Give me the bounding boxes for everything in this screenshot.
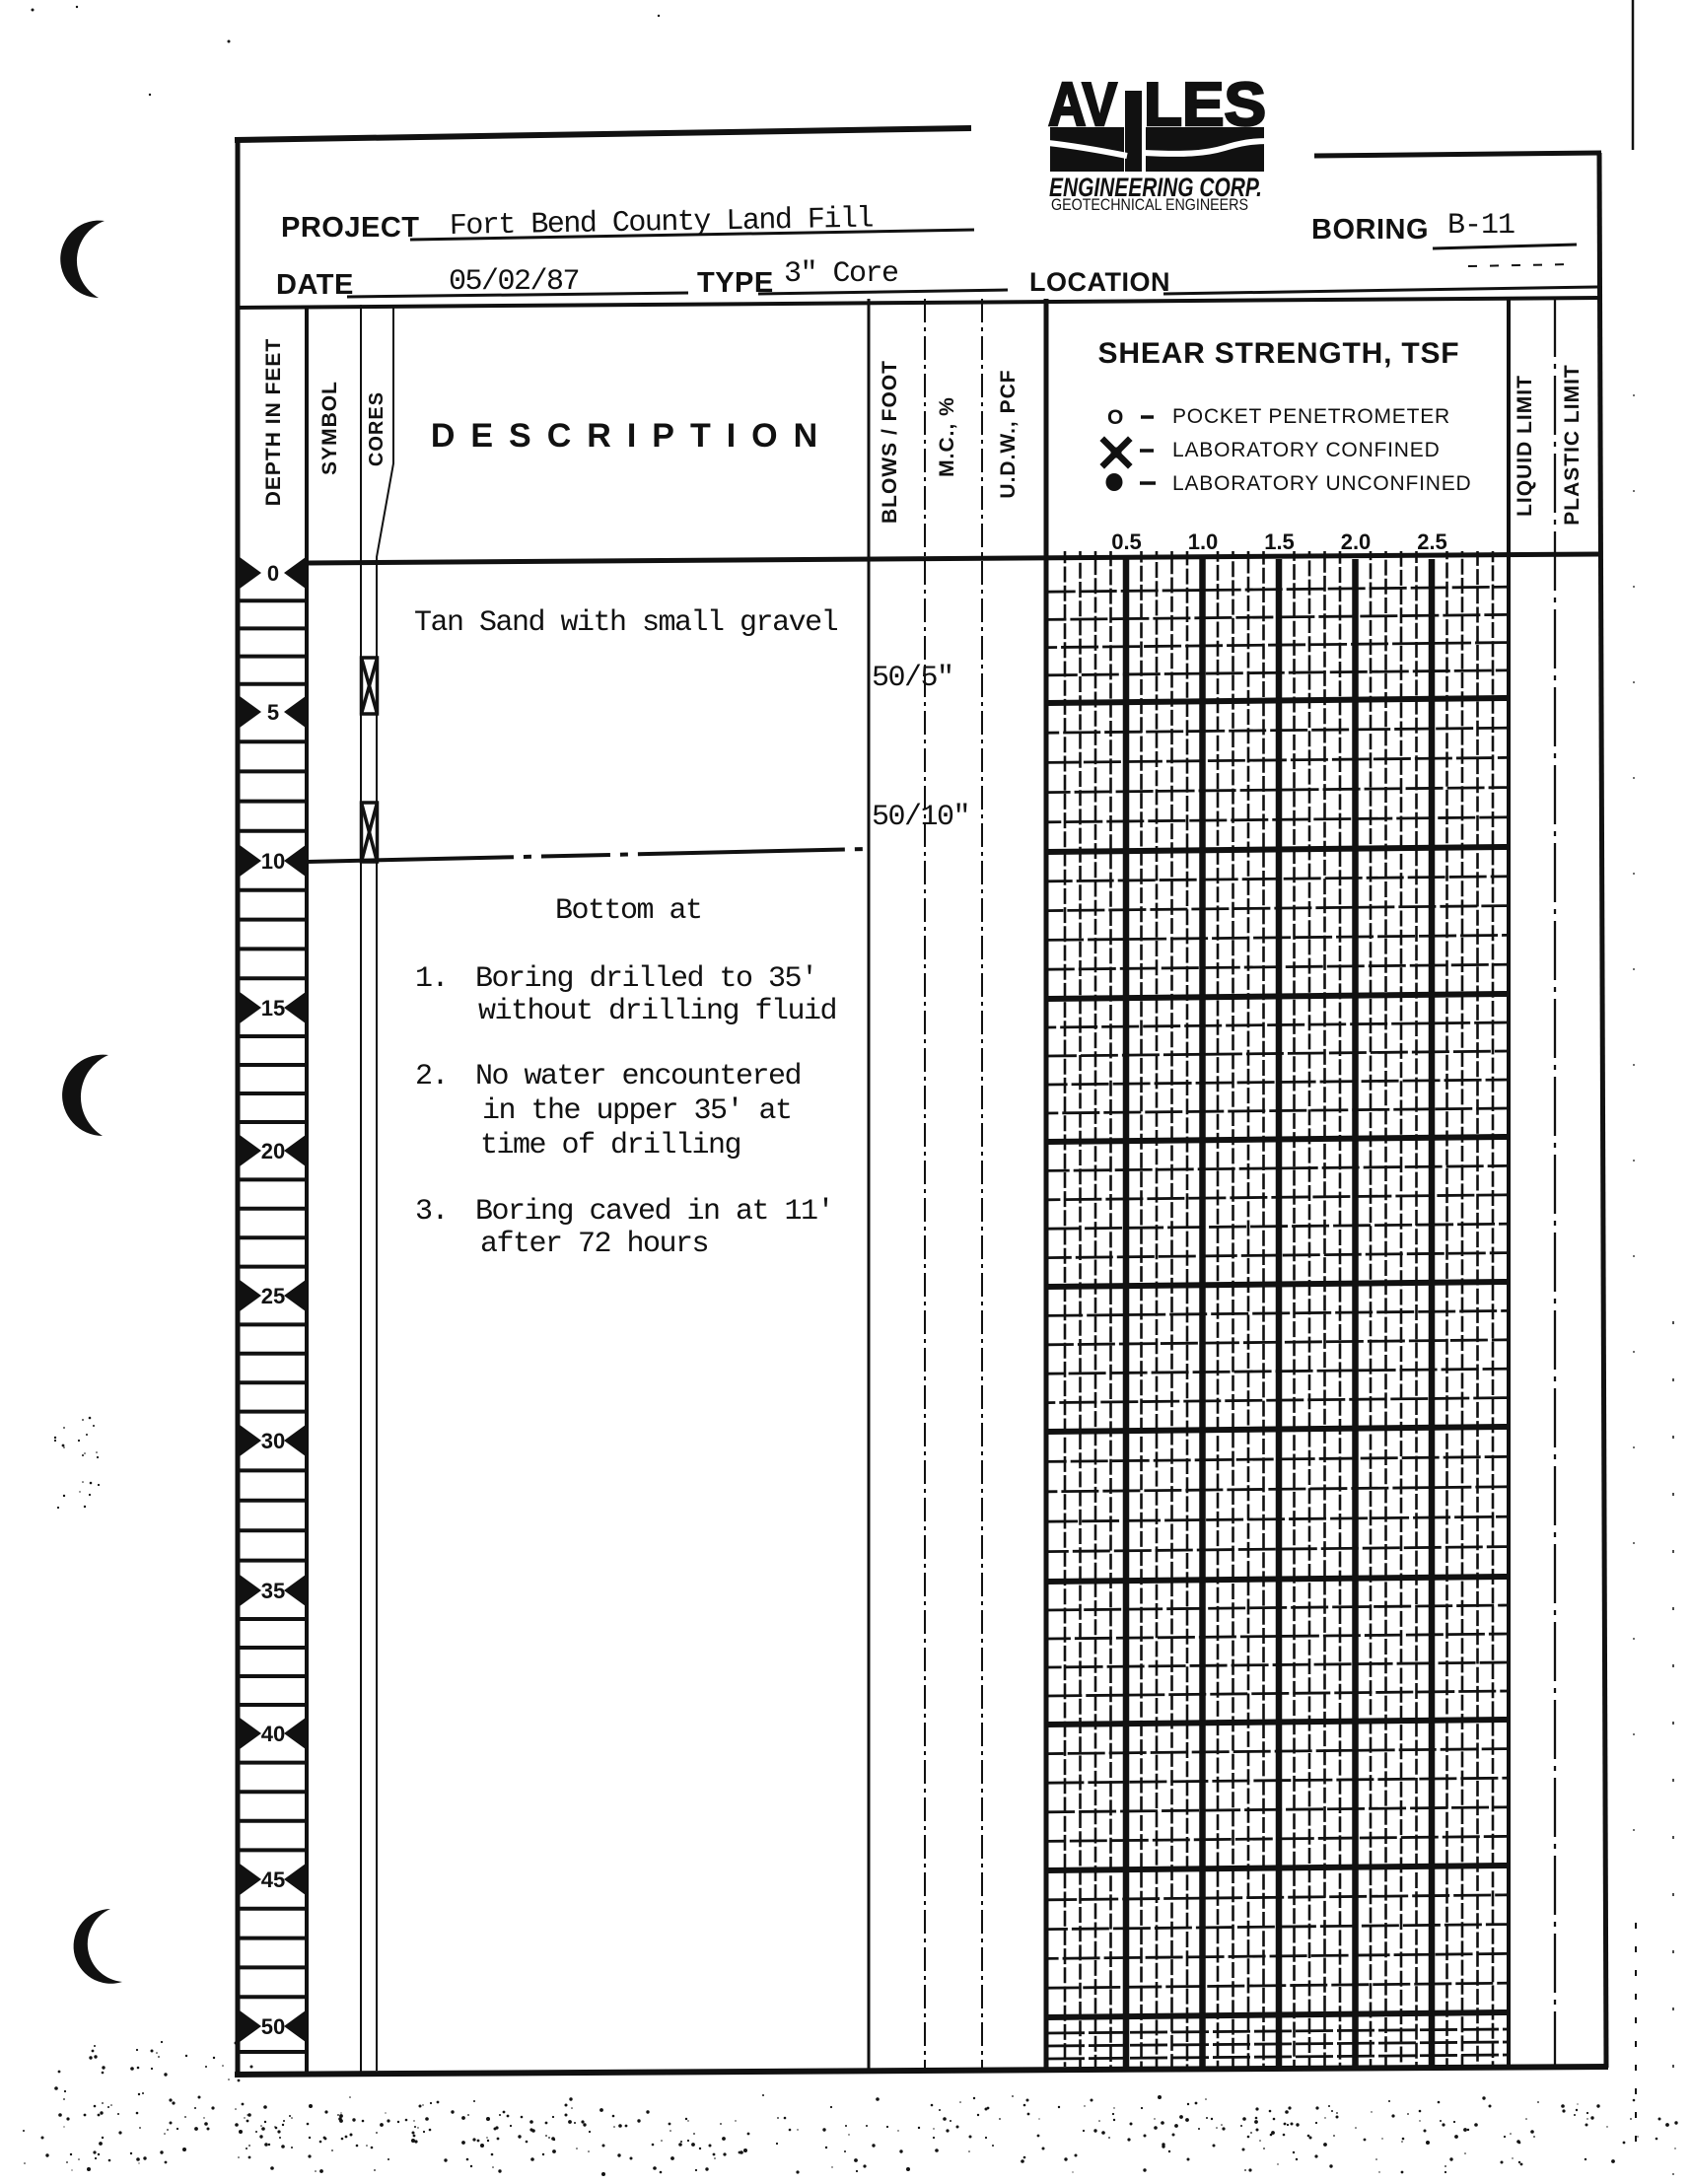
svg-text:U.D.W., PCF: U.D.W., PCF <box>997 369 1020 498</box>
svg-text:Boring caved in at 11': Boring caved in at 11' <box>475 1195 833 1229</box>
svg-text:in the upper 35' at: in the upper 35' at <box>482 1094 792 1128</box>
svg-text:Bottom at: Bottom at <box>555 894 702 928</box>
svg-text:No water encountered: No water encountered <box>475 1060 801 1093</box>
svg-text:05/02/87: 05/02/87 <box>449 265 579 299</box>
svg-text:40: 40 <box>261 1722 285 1746</box>
svg-text:O: O <box>1107 406 1123 429</box>
svg-text:B-11: B-11 <box>1447 209 1515 243</box>
svg-text:0.5: 0.5 <box>1111 529 1142 554</box>
svg-text:25: 25 <box>261 1284 285 1308</box>
svg-text:2.: 2. <box>415 1060 448 1093</box>
svg-text:3" Core: 3" Core <box>784 257 898 291</box>
svg-text:POCKET PENETROMETER: POCKET PENETROMETER <box>1172 405 1450 428</box>
svg-text:50: 50 <box>261 2014 285 2039</box>
svg-text:1.: 1. <box>415 962 448 996</box>
svg-text:PROJECT: PROJECT <box>281 212 419 244</box>
svg-text:SHEAR STRENGTH, TSF: SHEAR STRENGTH, TSF <box>1098 337 1460 370</box>
svg-text:after 72 hours: after 72 hours <box>480 1228 708 1261</box>
svg-text:LIQUID LIMIT: LIQUID LIMIT <box>1514 375 1536 517</box>
svg-text:CORES: CORES <box>366 391 388 466</box>
svg-text:0: 0 <box>267 561 279 586</box>
svg-text:BLOWS / FOOT: BLOWS / FOOT <box>879 360 901 524</box>
svg-text:Tan Sand with small gravel: Tan Sand with small gravel <box>414 606 838 640</box>
svg-text:3.: 3. <box>415 1195 448 1229</box>
svg-text:LABORATORY UNCONFINED: LABORATORY UNCONFINED <box>1172 472 1471 495</box>
svg-text:45: 45 <box>261 1867 285 1892</box>
svg-text:LOCATION: LOCATION <box>1029 267 1170 297</box>
svg-text:BORING: BORING <box>1311 214 1429 246</box>
svg-text:GEOTECHNICAL ENGINEERS: GEOTECHNICAL ENGINEERS <box>1051 195 1248 214</box>
svg-text:2.0: 2.0 <box>1341 529 1372 554</box>
svg-text:DESCRIPTION: DESCRIPTION <box>431 417 833 455</box>
svg-text:1.0: 1.0 <box>1188 529 1219 554</box>
svg-text:10: 10 <box>261 849 285 874</box>
svg-text:DATE: DATE <box>276 269 354 301</box>
svg-text:Boring drilled to 35': Boring drilled to 35' <box>475 962 817 996</box>
svg-text:1.5: 1.5 <box>1264 529 1295 554</box>
svg-text:50/10": 50/10" <box>872 801 969 834</box>
svg-text:LABORATORY CONFINED: LABORATORY CONFINED <box>1172 439 1441 461</box>
svg-text:2.5: 2.5 <box>1417 529 1447 554</box>
svg-text:SYMBOL: SYMBOL <box>318 381 341 475</box>
svg-text:20: 20 <box>261 1139 285 1163</box>
svg-text:time of drilling: time of drilling <box>480 1129 740 1162</box>
svg-text:M.C., %: M.C., % <box>936 396 958 477</box>
svg-text:DEPTH IN FEET: DEPTH IN FEET <box>262 338 285 507</box>
svg-text:30: 30 <box>261 1429 285 1453</box>
svg-text:50/5": 50/5" <box>872 662 953 695</box>
svg-text:35: 35 <box>261 1579 285 1603</box>
svg-text:without drilling fluid: without drilling fluid <box>478 995 836 1028</box>
svg-text:5: 5 <box>267 700 279 725</box>
svg-text:PLASTIC LIMIT: PLASTIC LIMIT <box>1561 364 1584 526</box>
svg-text:15: 15 <box>261 996 285 1021</box>
